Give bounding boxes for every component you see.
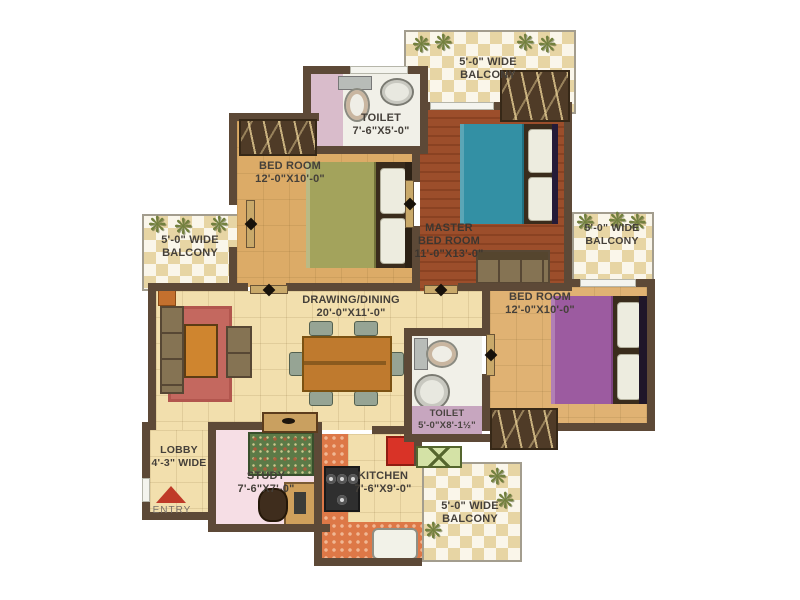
wall bbox=[314, 426, 322, 566]
entry-arrow-icon bbox=[156, 486, 186, 503]
label-bedroom-right: BED ROOM12'-0"X10'-0" bbox=[488, 291, 592, 317]
window bbox=[430, 102, 494, 110]
wall bbox=[286, 283, 420, 291]
coffee-table bbox=[184, 324, 218, 378]
wall bbox=[404, 328, 490, 336]
cabinet bbox=[262, 412, 318, 433]
label-drawing-dining: DRAWING/DINING20'-0"X11'-0" bbox=[272, 294, 430, 320]
plant-icon: ❋ bbox=[488, 466, 506, 488]
wall bbox=[148, 283, 248, 291]
burner-icon bbox=[337, 495, 347, 505]
plant-icon: ❋ bbox=[210, 214, 228, 236]
plant-icon: ❋ bbox=[538, 34, 556, 56]
chair bbox=[354, 321, 378, 336]
plant-icon: ❋ bbox=[148, 214, 166, 236]
wall bbox=[458, 283, 572, 291]
wardrobe bbox=[239, 119, 317, 156]
sofa bbox=[226, 326, 252, 378]
door-icon bbox=[424, 285, 458, 294]
label-balcony-top: 5'-0" WIDEBALCONY bbox=[426, 56, 550, 82]
label-toilet-bottom: TOILET5'-0"X8'-1½" bbox=[409, 408, 485, 432]
wall bbox=[303, 146, 420, 154]
label-balcony-bottom: 5'-0" WIDEBALCONY bbox=[424, 500, 516, 526]
door-icon bbox=[250, 285, 288, 294]
door-icon bbox=[405, 180, 414, 228]
floor-plan: ❋ ❋ ❋ ❋ ❋ ❋ ❋ ❋ ❋ ❋ ❋ ❋ ❋ 5'-0" WIDEBALC… bbox=[0, 0, 800, 600]
plant-icon: ❋ bbox=[434, 32, 452, 54]
wall bbox=[229, 113, 237, 205]
chair bbox=[354, 391, 378, 406]
door-icon bbox=[486, 334, 495, 376]
wall bbox=[647, 279, 655, 431]
label-balcony-left: 5'-0" WIDEBALCONY bbox=[146, 234, 234, 260]
window bbox=[350, 66, 408, 74]
chair bbox=[309, 321, 333, 336]
kitchen-sink bbox=[372, 528, 418, 560]
plant-icon: ❋ bbox=[412, 34, 430, 56]
label-master-bedroom: MASTERBED ROOM11'-0"X13'-0" bbox=[402, 222, 496, 261]
window bbox=[142, 478, 150, 502]
sofa bbox=[160, 306, 184, 394]
wall bbox=[148, 287, 156, 430]
chair bbox=[309, 391, 333, 406]
wash-basin bbox=[380, 78, 414, 106]
label-kitchen: KITCHEN7'-6"X9'-0" bbox=[330, 470, 436, 496]
wall bbox=[564, 102, 572, 291]
label-toilet-top: TOILET7'-6"X5'-0" bbox=[338, 112, 424, 138]
label-bedroom-left: BED ROOM12'-0"X10'-0" bbox=[234, 160, 346, 186]
label-balcony-right: 5'-0" WIDEBALCONY bbox=[572, 222, 652, 248]
window bbox=[580, 279, 636, 287]
balcony-door-mat bbox=[416, 446, 462, 468]
toilet-bowl bbox=[426, 340, 458, 368]
label-entry: ENTRY bbox=[142, 504, 202, 517]
wall bbox=[314, 558, 422, 566]
wall bbox=[412, 154, 420, 182]
dining-table bbox=[302, 336, 392, 392]
label-study: STUDY7'-6"X7'-0" bbox=[212, 470, 320, 496]
wall bbox=[208, 524, 330, 532]
door-icon bbox=[246, 200, 255, 248]
plant-icon: ❋ bbox=[516, 32, 534, 54]
label-lobby: LOBBY4'-3" WIDE bbox=[144, 444, 214, 470]
wardrobe bbox=[490, 408, 558, 450]
bed-teal bbox=[460, 124, 558, 224]
stool bbox=[158, 290, 176, 306]
wash-basin bbox=[414, 374, 450, 410]
